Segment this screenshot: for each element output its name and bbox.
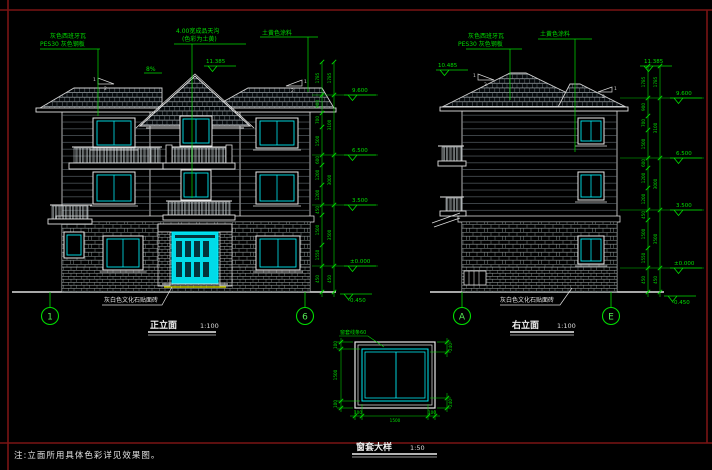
dim-seg: 1550 [641, 252, 646, 263]
dim-seg: 1785 [641, 76, 646, 87]
window-3f-left [90, 118, 138, 150]
window-3f-center [180, 116, 212, 146]
level-ridge-label: 11.385 [644, 59, 664, 65]
window-1f-right [253, 236, 303, 272]
side-elevation-title: 右立面 [511, 319, 539, 331]
drain-slope-label: 8% [146, 66, 156, 73]
level-ground-label: -0.450 [348, 298, 366, 304]
gutter-annotation-2: (色彩为土黄) [182, 35, 217, 43]
detail-dim-h: 1500 [390, 418, 401, 423]
balcony-2f-center [163, 201, 235, 220]
grid-label-6: 6 [302, 313, 308, 323]
dim-seg: 900 [641, 103, 646, 111]
dim-seg: 1200 [315, 169, 320, 180]
slope-run-label: 2 [484, 82, 487, 88]
cad-drawing-canvas: 2 1 2 1 [0, 0, 712, 470]
level-f3-label: 9.600 [676, 91, 692, 97]
dim-seg: 1550 [315, 249, 320, 260]
front-elevation-title: 正立面 [150, 319, 177, 331]
paint-annotation-side: 土黄色涂料 [540, 30, 570, 38]
balcony-3f-center [163, 145, 235, 169]
roof-left-wing [40, 88, 162, 108]
window-side-1f [575, 236, 607, 266]
dim-total: 450 [327, 275, 332, 283]
detail-dim-r: 240 [448, 343, 453, 351]
dim-total: 3100 [327, 119, 332, 130]
dim-total: 3500 [327, 229, 332, 240]
front-elevation: 2 1 2 1 [12, 74, 336, 292]
roof-tile-annotation-2: PES30 灰色钢板 [40, 40, 85, 48]
dim-seg: 450 [315, 206, 320, 214]
slope-run-label: 2 [104, 86, 107, 92]
gutter-annotation-1: 4.00宽成品天沟 [176, 27, 219, 35]
dim-total: 3500 [653, 233, 658, 244]
detail-dim-h: 100 [428, 410, 436, 415]
level-zero-label: ±0.000 [350, 259, 371, 265]
level-f2-label: 6.500 [676, 151, 692, 157]
window-side-2f [575, 172, 607, 202]
slope-rise-label: 1 [614, 86, 617, 92]
dim-total: 3000 [327, 174, 332, 185]
grid-label-1: 1 [47, 313, 53, 323]
dim-total: 3100 [653, 122, 658, 133]
window-side-3f [575, 118, 607, 146]
level-zero-label: ±0.000 [674, 261, 695, 267]
detail-dim-v: 100 [333, 400, 338, 408]
dim-total: 1785 [327, 72, 332, 83]
entrance-door [158, 224, 232, 287]
level-f3-label: 9.600 [352, 88, 368, 94]
dim-seg: 1200 [641, 172, 646, 183]
dim-seg: 450 [641, 276, 646, 284]
dim-total: 3000 [653, 178, 658, 189]
dim-seg: 700 [641, 119, 646, 127]
slope-rise-label: 1 [304, 79, 307, 85]
stone-annotation-front: 灰白色文化石贴面砖 [104, 296, 158, 304]
level-f2-label: 6.500 [352, 148, 368, 154]
window-detail-title: 窗套大样 [356, 441, 392, 453]
dim-total: 450 [653, 276, 658, 284]
dim-seg: 700 [315, 116, 320, 124]
side-elevation-scale: 1:100 [557, 322, 576, 330]
roof-tile-annotation-side-1: 灰色西班牙瓦 [468, 32, 504, 40]
detail-dim-h: 100 [354, 410, 362, 415]
dim-seg: 1500 [641, 138, 646, 149]
slope-rise-label: 1 [473, 73, 476, 79]
roof-tile-annotation-side-2: PES30 灰色钢板 [458, 40, 503, 48]
window-detail-scale: 1:50 [410, 444, 425, 452]
level-ridge2-label: 10.485 [438, 63, 458, 69]
slope-run-label: 2 [602, 94, 605, 100]
level-ridge-label: 11.385 [206, 59, 226, 65]
dim-total: 1785 [653, 76, 658, 87]
dim-seg: 600 [641, 159, 646, 167]
basement-grille [464, 271, 486, 285]
slope-rise-label: 1 [93, 77, 96, 83]
level-f1-label: 3.500 [352, 198, 368, 204]
grid-label-A: A [459, 313, 466, 323]
drawing-note: 注:立面所用具体色彩详见效果图。 [14, 449, 160, 461]
window-trim-annotation: 窗套线条60 [340, 329, 366, 336]
grid-label-E: E [608, 313, 614, 323]
dim-seg: 900 [315, 100, 320, 108]
detail-dim-r: 240 [448, 399, 453, 407]
level-f1-label: 3.500 [676, 203, 692, 209]
paint-annotation-front: 土黄色涂料 [262, 29, 292, 37]
dim-seg: 1500 [315, 224, 320, 235]
level-ground-label: -0.450 [672, 300, 690, 306]
window-2f-right [253, 172, 301, 206]
dim-seg: 450 [315, 275, 320, 283]
roof-tile-annotation-1: 灰色西班牙瓦 [50, 32, 86, 40]
window-detail: 100 1500 100 100 1500 100 240 240 窗套线条60… [333, 329, 453, 457]
detail-dim-v: 100 [333, 341, 338, 349]
dimension-chains-side: 1785 900 700 1500 600 1200 1200 450 1500… [641, 64, 662, 297]
window-1f-left [100, 236, 146, 272]
dim-seg: 1785 [315, 72, 320, 83]
stone-annotation-side: 灰白色文化石贴面砖 [500, 296, 554, 304]
balcony-side-2f [440, 197, 466, 216]
window-2f-left [90, 172, 138, 206]
slope-run-label: 2 [291, 88, 294, 94]
window-2f-center [181, 170, 211, 200]
dim-seg: 1200 [641, 193, 646, 204]
dim-seg: 1200 [315, 189, 320, 200]
dim-seg: 1500 [315, 135, 320, 146]
elevation-drawing: 2 1 2 1 [0, 0, 712, 470]
dim-seg: 450 [641, 211, 646, 219]
dim-seg: 600 [315, 156, 320, 164]
dim-seg: 1500 [641, 228, 646, 239]
window-3f-right [253, 118, 301, 150]
window-1f-small [64, 232, 84, 258]
balcony-side-3f [438, 146, 466, 166]
detail-dim-v: 1500 [333, 369, 338, 380]
balcony-3f-left [69, 147, 165, 169]
balcony-2f-far-left [48, 205, 92, 224]
front-elevation-scale: 1:100 [200, 322, 219, 330]
side-elevation: 2 1 2 1 [430, 73, 664, 292]
